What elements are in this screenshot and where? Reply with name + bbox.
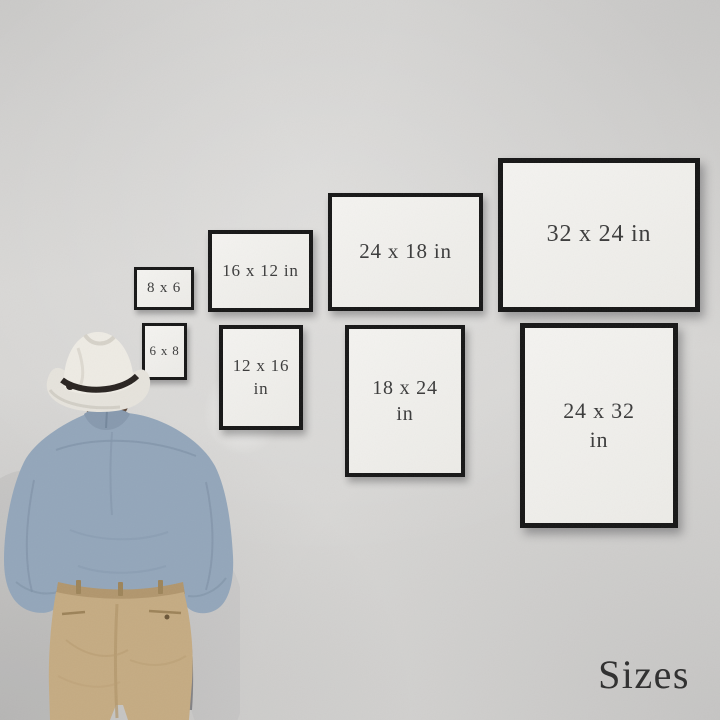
size-frame-24x18: 24 x 18 in: [328, 193, 483, 311]
frame-label: 24 x 18 in: [359, 238, 452, 265]
frame-label: 8 x 6: [147, 279, 181, 299]
pocket-button: [165, 615, 170, 620]
size-frame-24x32: 24 x 32in: [520, 323, 678, 528]
size-frame-32x24: 32 x 24 in: [498, 158, 700, 312]
size-frame-18x24: 18 x 24in: [345, 325, 465, 477]
belt-loop: [158, 580, 163, 594]
frame-label: 18 x 24in: [372, 375, 438, 427]
size-frame-16x12: 16 x 12 in: [208, 230, 313, 312]
belt-loop: [118, 582, 123, 596]
frame-label: 16 x 12 in: [222, 260, 298, 282]
wall-scene: 8 x 6 16 x 12 in 24 x 18 in 32 x 24 in 6…: [0, 0, 720, 720]
size-frame-8x6: 8 x 6: [134, 267, 194, 310]
frame-label: 24 x 32in: [563, 397, 635, 454]
man-figure: [0, 320, 240, 720]
frame-label: 12 x 16in: [233, 355, 290, 399]
trousers: [49, 580, 193, 720]
fedora-hat: [47, 332, 150, 412]
hat-band-knot: [66, 382, 74, 390]
belt-loop: [76, 580, 81, 594]
frame-label: 32 x 24 in: [547, 219, 652, 250]
sizes-caption: Sizes: [598, 651, 690, 698]
